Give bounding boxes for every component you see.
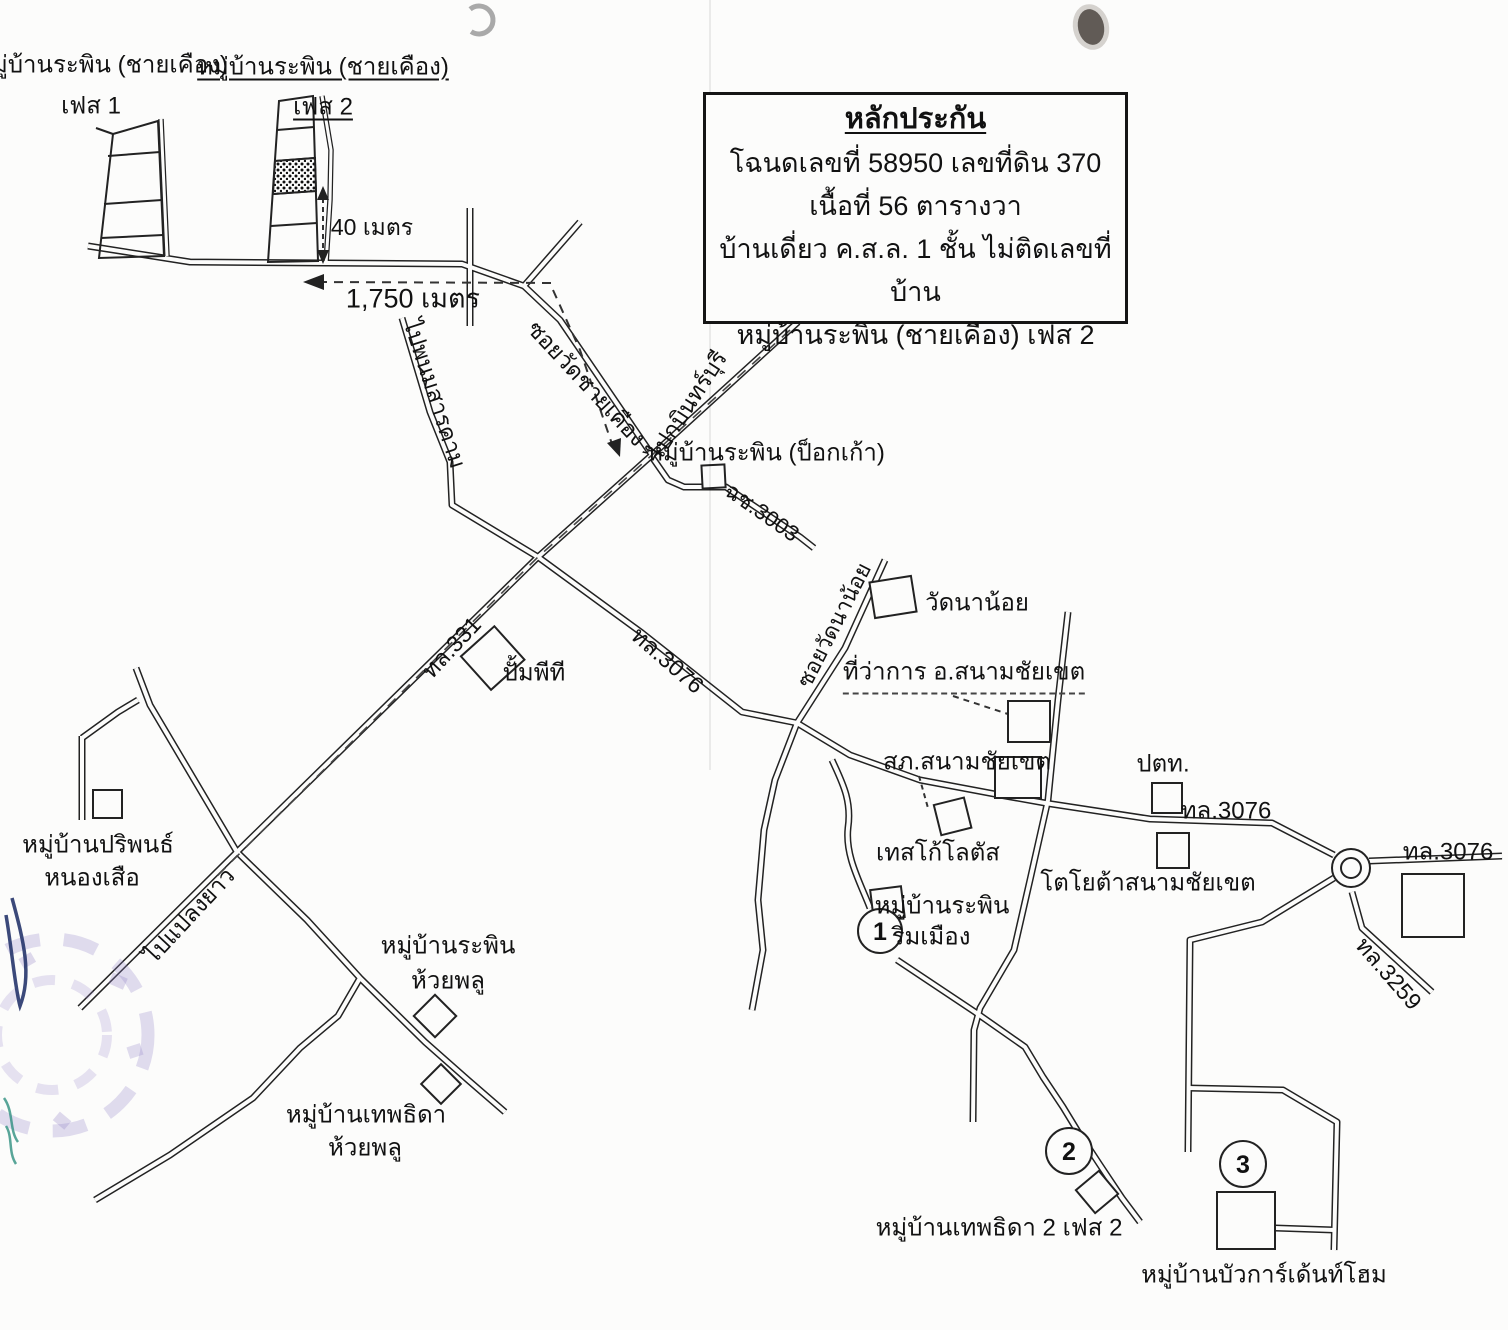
wat-nanoi-marker (869, 576, 916, 618)
wat-nanoi-label: วัดนาน้อย (925, 583, 1029, 622)
ptt-marker (1152, 783, 1182, 813)
rapin-huaiphlu-label-1: หมู่บ้านระพิน (381, 926, 516, 965)
ptt-label: ปตท. (1136, 744, 1189, 783)
rapin-rimmueang-label-2: ริมเมือง (892, 917, 971, 956)
nongsuea-label: หนองเสือ (44, 858, 140, 897)
location-marker-3: 3 (1220, 1141, 1266, 1187)
collateral-info-box: หลักประกัน โฉนดเลขที่ 58950 เลขที่ดิน 37… (703, 92, 1128, 324)
rapin-pokkao-label: หมู่บ้านระพิน (ป็อกเก้า) (647, 433, 885, 472)
pariphon-marker (93, 790, 122, 818)
stamp-remnant (0, 939, 148, 1131)
rapin-huaiphlu-marker (414, 995, 456, 1037)
thepthida-huaiphlu-label-2: ห้วยพลู (328, 1128, 402, 1167)
village-line: หมู่บ้านระพิน (ชายเคือง) เฟส 2 (737, 313, 1095, 356)
depth-40m-label: 40 เมตร (331, 210, 413, 246)
tesco-lotus-marker (934, 798, 972, 836)
phase2-label: เฟส 2 (293, 87, 353, 126)
subject-plot-hatched (273, 158, 316, 194)
thepthida2-label: หมู่บ้านเทพธิดา 2 เฟส 2 (876, 1208, 1123, 1247)
pt-gas-station-label: ปั้มพีที (503, 653, 566, 692)
distance-1750m-label: 1,750 เมตร (346, 277, 480, 320)
land-area-line: เนื้อที่ 56 ตารางวา (809, 184, 1022, 227)
tesco-lotus-label: เทสโก้โลตัส (876, 833, 1000, 872)
police-station-label: สภ.สนามชัยเขต (883, 742, 1051, 781)
rapin-huaiphlu-label-2: ห้วยพลู (411, 961, 485, 1000)
building-desc-line: บ้านเดี่ยว ค.ส.ล. 1 ชั้น ไม่ติดเลขที่บ้า… (706, 227, 1125, 313)
hwy3076-east-label: ทล.3076 (1403, 832, 1494, 871)
phase1-label: เฟส 1 (61, 86, 121, 125)
hwy3076-mid-label: ทล.3076 (1181, 791, 1272, 830)
roundabout (1332, 849, 1370, 887)
svg-text:3: 3 (1236, 1151, 1250, 1179)
scan-artifacts (459, 0, 1113, 53)
district-office-leader (953, 696, 1014, 716)
svg-text:2: 2 (1062, 1138, 1076, 1166)
phase1-parcel-sketch (96, 121, 164, 258)
phase2-village-name: หมู่บ้านระพิน (ชายเคือง) (197, 47, 449, 86)
phase1-village-name: หมู่บ้านระพิน (ชายเคือง) (0, 45, 228, 84)
collateral-title: หลักประกัน (845, 95, 986, 141)
toyota-label: โตโยต้าสนามชัยเขต (1040, 863, 1255, 902)
large-building-marker (1402, 874, 1464, 937)
bua-garden-home-marker (1217, 1192, 1275, 1249)
scanned-map-page: 1 2 3 หลักปร (0, 0, 1508, 1330)
district-office-label: ที่ว่าการ อ.สนามชัยเขต (843, 652, 1085, 695)
location-marker-2: 2 (1046, 1128, 1092, 1174)
bua-garden-home-label: หมู่บ้านบัวการ์เด้นท์โฮม (1141, 1255, 1387, 1294)
district-office-marker (1008, 701, 1050, 742)
deed-number-line: โฉนดเลขที่ 58950 เลขที่ดิน 370 (730, 141, 1102, 184)
